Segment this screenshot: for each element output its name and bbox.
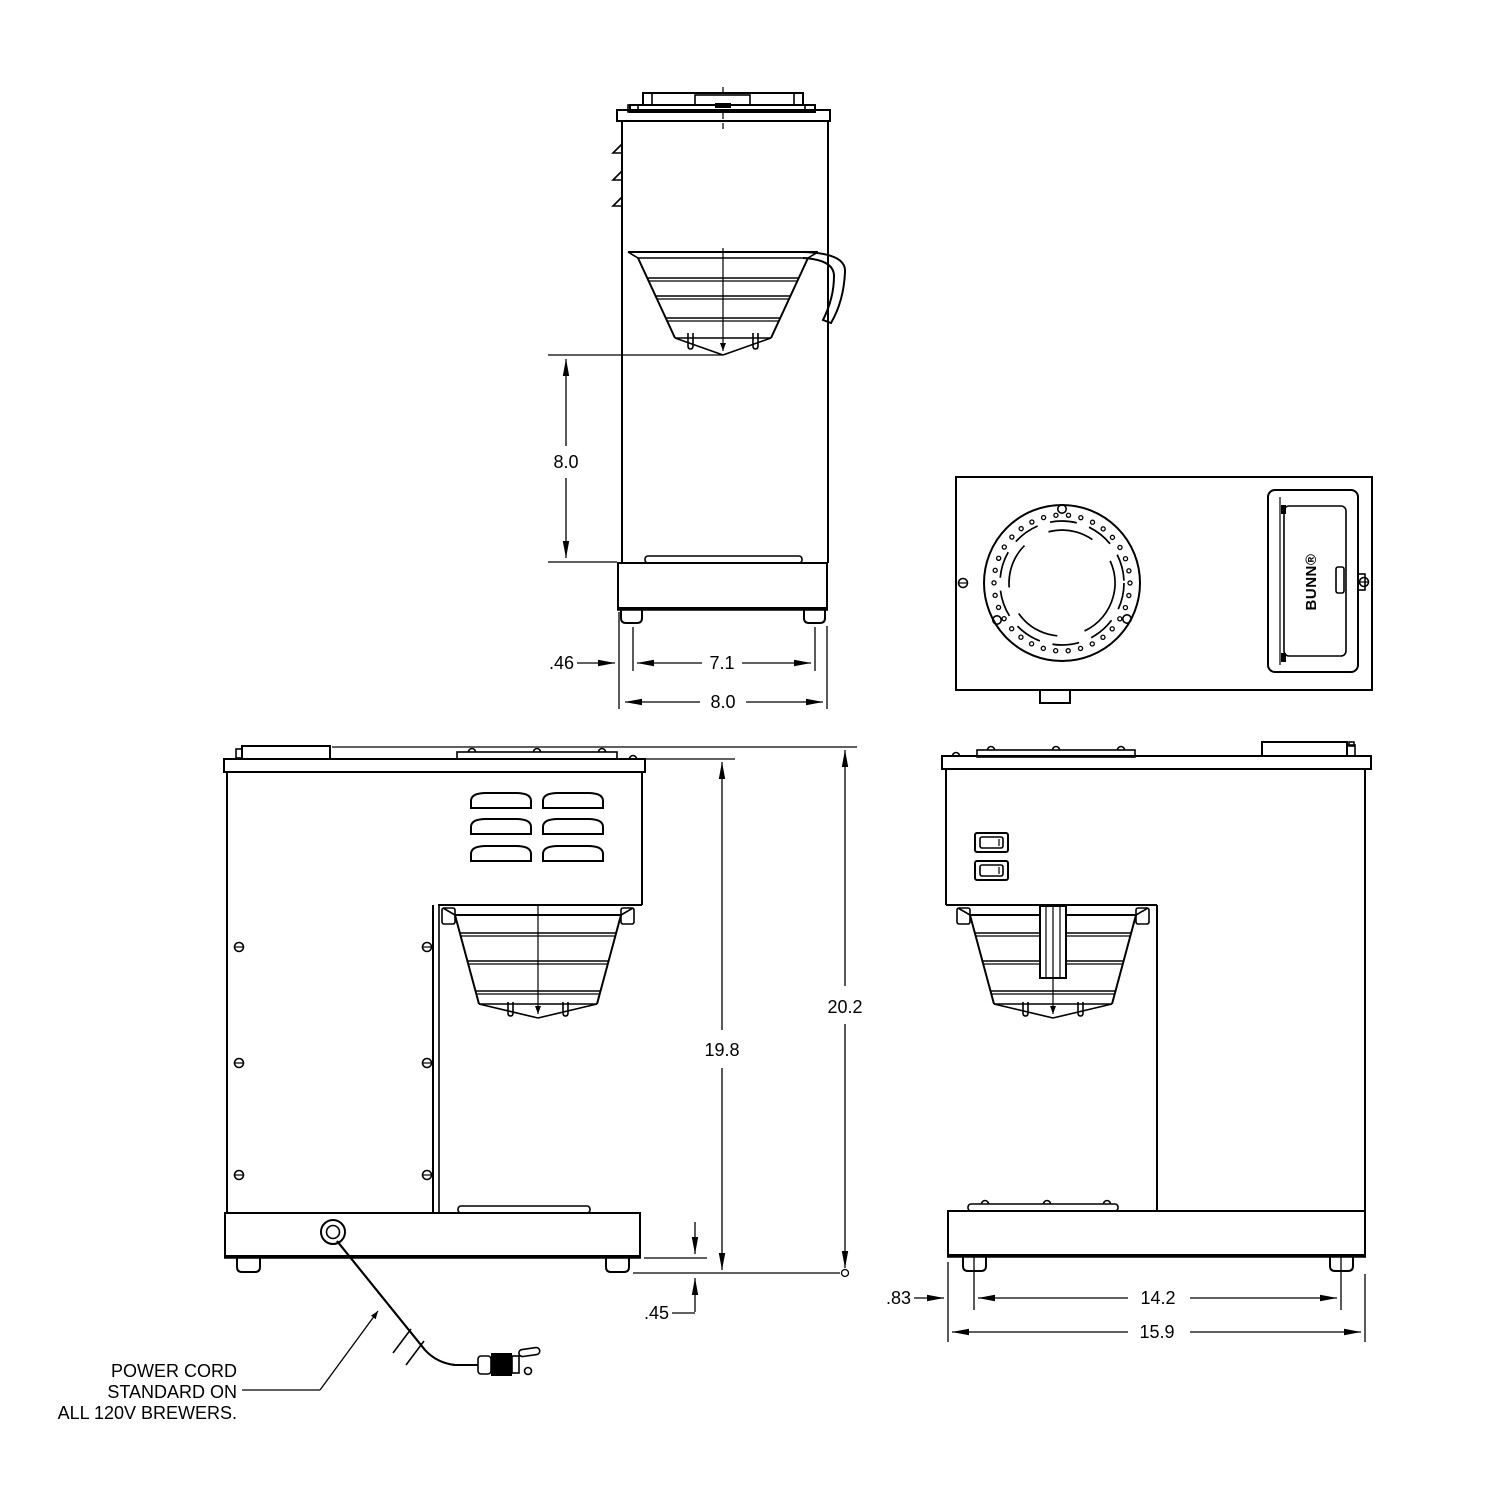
funnel-rear <box>442 905 634 1018</box>
leg <box>237 1258 260 1272</box>
side-view-dimensions: 8.0 .46 7.1 8.0 <box>548 355 827 712</box>
dim-leg-spacing: 14.2 <box>1140 1288 1175 1308</box>
front-view <box>942 742 1371 1271</box>
dim-leg-inset: .83 <box>886 1288 911 1308</box>
plug-icon <box>478 1347 540 1376</box>
vent-slots <box>471 793 603 861</box>
dim-leg-height: .45 <box>644 1303 669 1323</box>
rear-clip <box>613 171 622 180</box>
drip-tray-edge <box>968 1204 1118 1211</box>
leg <box>804 610 825 623</box>
front-view-dimensions: .83 14.2 15.9 <box>886 1254 1365 1342</box>
note-line-2: STANDARD ON <box>107 1382 237 1402</box>
sprayhead-ring <box>984 505 1140 661</box>
dim-funnel-clearance: 8.0 <box>553 452 578 472</box>
brewer-dimension-diagram: 8.0 .46 7.1 8.0 <box>0 0 1500 1500</box>
rear-clip <box>613 144 622 153</box>
dim-overall-height: 20.2 <box>827 997 862 1017</box>
power-cord-note: POWER CORD STANDARD ON ALL 120V BREWERS. <box>58 1311 378 1423</box>
note-line-1: POWER CORD <box>111 1361 237 1381</box>
warmer-lid <box>242 746 330 759</box>
funnel-front <box>957 905 1149 1018</box>
funnel-handle <box>803 252 845 323</box>
screw-icon <box>1360 578 1369 587</box>
dim-leg-inset: .46 <box>549 653 574 673</box>
screw-icon <box>959 579 968 588</box>
dim-depth: 8.0 <box>710 692 735 712</box>
dim-body-height: 19.8 <box>704 1040 739 1060</box>
panel-screws <box>235 943 432 1180</box>
rear-view <box>224 746 645 1376</box>
dimension-drawing-page: 8.0 .46 7.1 8.0 <box>0 0 1500 1500</box>
warmer-lid <box>1262 742 1355 756</box>
lid-hinge-pin <box>715 103 731 108</box>
dim-leg-spacing: 7.1 <box>709 653 734 673</box>
brew-switch <box>975 833 1008 852</box>
rear-view-dimensions: 19.8 20.2 .45 POWER CORD STANDARD ON ALL… <box>58 747 863 1423</box>
rear-clip <box>613 197 622 206</box>
dim-width: 15.9 <box>1139 1322 1174 1342</box>
top-view: BUNN® <box>956 477 1372 703</box>
drip-tray-edge <box>458 1206 590 1213</box>
leg <box>606 1258 629 1272</box>
note-line-3: ALL 120V BREWERS. <box>58 1403 237 1423</box>
power-cord <box>321 1220 540 1376</box>
warmer-switch <box>975 861 1008 880</box>
leg <box>621 610 642 623</box>
bunn-logo: BUNN® <box>1303 554 1320 611</box>
drip-tray-edge <box>645 556 802 563</box>
warmer-lid-top: BUNN® <box>1268 490 1365 672</box>
funnel-side <box>628 248 845 355</box>
